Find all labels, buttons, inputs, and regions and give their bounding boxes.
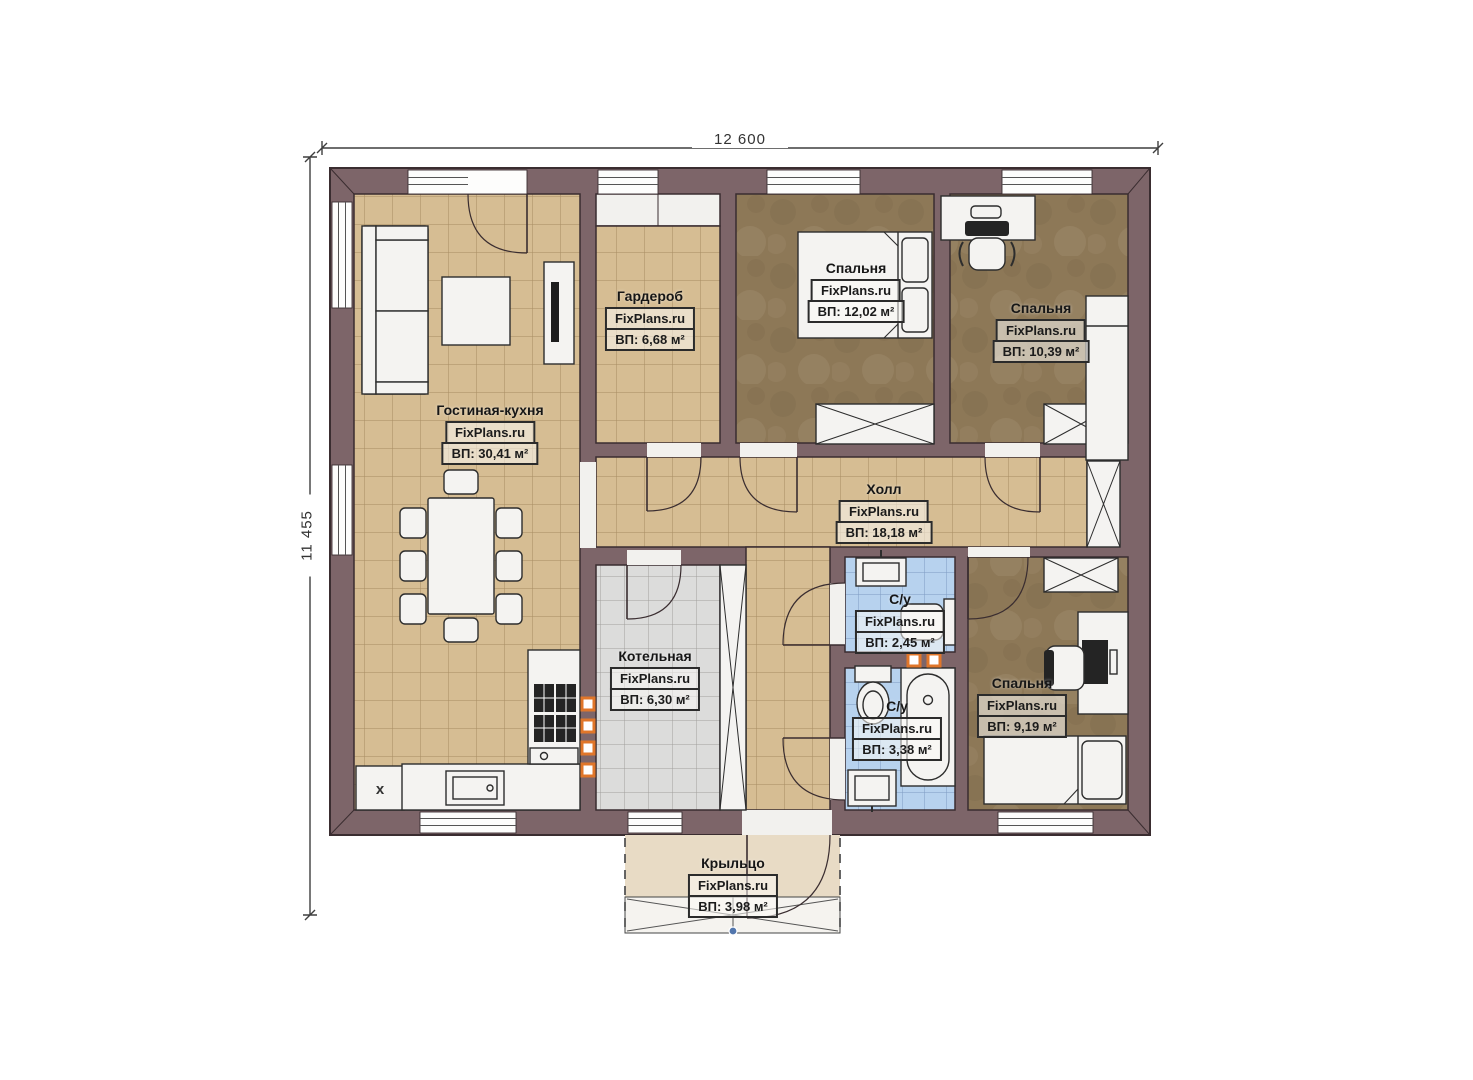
desk-bedroom3: [1078, 612, 1128, 714]
floor-plan-drawing: x: [0, 0, 1473, 1080]
window-wardrobe-top: [598, 170, 658, 194]
watermark: FixPlans.ru: [855, 610, 945, 633]
floor-plan-page: x 12 600 11 455 Гостиная-кухня FixPlans.…: [0, 0, 1473, 1080]
opening-wardrobe: [647, 443, 701, 457]
room-label-wc-1: С/у FixPlans.ru ВП: 2,45 м²: [855, 591, 945, 654]
watermark: FixPlans.ru: [445, 421, 535, 444]
room-name: Крыльцо: [701, 855, 765, 871]
room-area: ВП: 10,39 м²: [993, 340, 1090, 363]
room-area: ВП: 3,98 м²: [688, 895, 778, 918]
chair: [400, 508, 426, 538]
room-name: С/у: [886, 698, 908, 714]
window-bedroom3-bottom: [998, 812, 1093, 833]
opening-wc1: [830, 583, 845, 645]
room-area: ВП: 30,41 м²: [442, 442, 539, 465]
watermark: FixPlans.ru: [610, 667, 700, 690]
chair: [444, 470, 478, 494]
watermark: FixPlans.ru: [852, 717, 942, 740]
room-label-wardrobe: Гардероб FixPlans.ru ВП: 6,68 м²: [605, 288, 695, 351]
kitchen-x-marker: x: [376, 781, 385, 798]
room-name: Гостиная-кухня: [436, 402, 543, 418]
opening-wc2: [830, 738, 845, 800]
chair: [496, 508, 522, 538]
porch-step-dot: [729, 927, 737, 935]
watermark: FixPlans.ru: [977, 694, 1067, 717]
room-name: Спальня: [992, 675, 1052, 691]
room-name: Котельная: [618, 648, 691, 664]
dimension-height-label: 11 455: [299, 495, 316, 577]
room-area: ВП: 12,02 м²: [808, 300, 905, 323]
room-label-bedroom-3: Спальня FixPlans.ru ВП: 9,19 м²: [977, 675, 1067, 738]
room-label-wc-2: С/у FixPlans.ru ВП: 3,38 м²: [852, 698, 942, 761]
window-living-left-lower: [332, 465, 352, 555]
window-living-top: [408, 170, 527, 194]
room-name: Спальня: [826, 260, 886, 276]
room-label-bedroom-1: Спальня FixPlans.ru ВП: 12,02 м²: [808, 260, 905, 323]
tv-stand: [544, 262, 574, 364]
room-label-boiler: Котельная FixPlans.ru ВП: 6,30 м²: [610, 648, 700, 711]
dimension-width-label: 12 600: [692, 131, 788, 148]
chair: [496, 594, 522, 624]
chair: [444, 618, 478, 642]
opening-bedroom1: [740, 443, 797, 457]
bathroom-sink-2: [848, 770, 896, 812]
room-area: ВП: 3,38 м²: [852, 738, 942, 761]
chair: [400, 594, 426, 624]
opening-entrance: [742, 810, 832, 835]
closet-bedroom3: [1044, 558, 1118, 592]
opening-boiler: [627, 550, 681, 565]
room-area: ВП: 6,30 м²: [610, 688, 700, 711]
bath-cabinet: [944, 599, 955, 645]
closet-bedroom1: [816, 404, 934, 444]
room-name: Гардероб: [617, 288, 683, 304]
room-area: ВП: 9,19 м²: [977, 715, 1067, 738]
dining-table: [428, 498, 494, 614]
room-label-living: Гостиная-кухня FixPlans.ru ВП: 30,41 м²: [436, 402, 543, 465]
watermark: FixPlans.ru: [605, 307, 695, 330]
window-living-left-upper: [332, 202, 352, 308]
chair: [400, 551, 426, 581]
room-label-hall: Холл FixPlans.ru ВП: 18,18 м²: [836, 481, 933, 544]
opening-bedroom3: [968, 547, 1030, 557]
window-boiler-bottom: [628, 812, 682, 833]
kitchen-sink: [446, 771, 504, 805]
bed-bedroom3: [984, 736, 1126, 804]
room-label-porch: Крыльцо FixPlans.ru ВП: 3,98 м²: [688, 855, 778, 918]
opening-bedroom2: [985, 443, 1040, 457]
window-bedroom1-top: [767, 170, 860, 194]
window-kitchen-bottom: [420, 812, 516, 833]
room-label-bedroom-2: Спальня FixPlans.ru ВП: 10,39 м²: [993, 300, 1090, 363]
room-name: С/у: [889, 591, 911, 607]
closet-hall: [1087, 461, 1120, 547]
watermark: FixPlans.ru: [839, 500, 929, 523]
stove: [528, 650, 580, 764]
computer: [1082, 640, 1108, 684]
room-area: ВП: 2,45 м²: [855, 631, 945, 654]
room-area: ВП: 18,18 м²: [836, 521, 933, 544]
coffee-table: [442, 277, 510, 345]
chair: [496, 551, 522, 581]
opening-living-hall: [580, 462, 596, 548]
room-name: Холл: [866, 481, 901, 497]
window-bedroom2-top: [1002, 170, 1092, 194]
watermark: FixPlans.ru: [688, 874, 778, 897]
room-name: Спальня: [1011, 300, 1071, 316]
sofa: [362, 226, 428, 394]
bed-bedroom2: [1086, 296, 1128, 460]
tv: [551, 282, 559, 342]
ventilation-shaft: [720, 565, 746, 810]
watermark: FixPlans.ru: [811, 279, 901, 302]
room-area: ВП: 6,68 м²: [605, 328, 695, 351]
watermark: FixPlans.ru: [996, 319, 1086, 342]
